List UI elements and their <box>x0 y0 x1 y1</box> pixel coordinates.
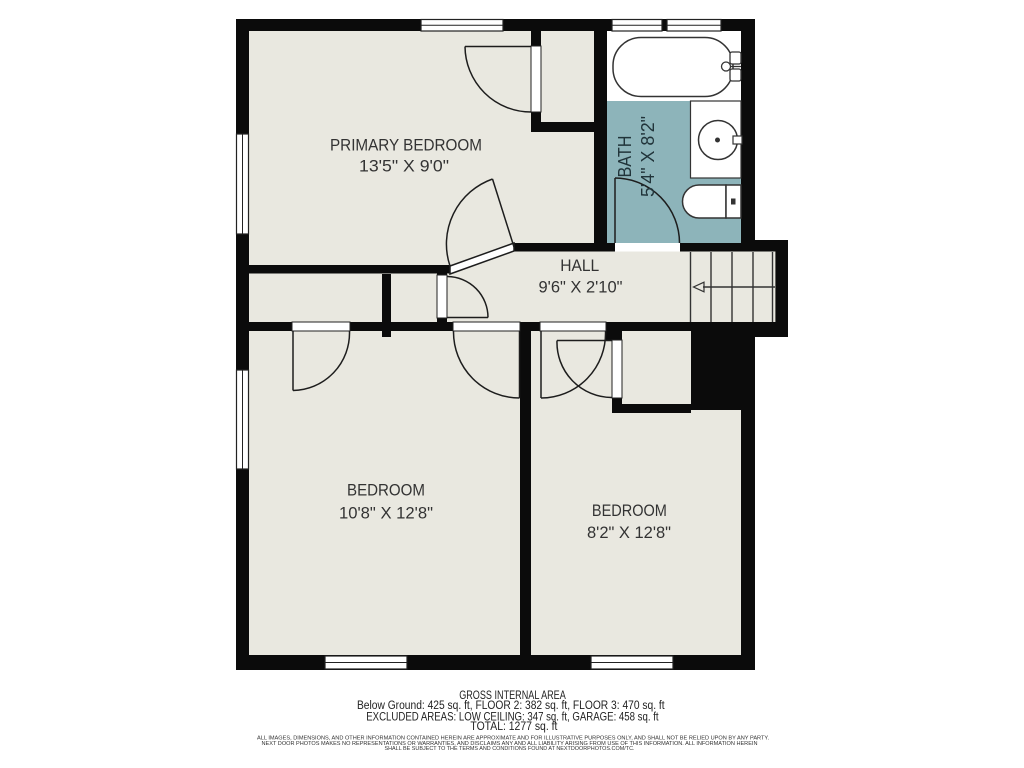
svg-text:HALL: HALL <box>560 257 599 275</box>
svg-text:PRIMARY BEDROOM: PRIMARY BEDROOM <box>330 137 482 155</box>
svg-text:13'5" X 9'0": 13'5" X 9'0" <box>359 158 449 176</box>
svg-text:5'4" X 8'2": 5'4" X 8'2" <box>638 116 658 197</box>
svg-text:TOTAL: 1277 sq. ft: TOTAL: 1277 sq. ft <box>470 719 558 733</box>
svg-text:SHALL BE SUBJECT TO THE TERMS: SHALL BE SUBJECT TO THE TERMS AND CONDIT… <box>385 746 635 752</box>
svg-text:8'2" X 12'8": 8'2" X 12'8" <box>587 524 671 542</box>
svg-text:9'6" X 2'10": 9'6" X 2'10" <box>539 278 623 296</box>
svg-text:BATH: BATH <box>615 136 635 178</box>
svg-text:BEDROOM: BEDROOM <box>592 502 667 520</box>
svg-text:BEDROOM: BEDROOM <box>347 481 425 499</box>
svg-text:10'8" X 12'8": 10'8" X 12'8" <box>339 505 433 523</box>
